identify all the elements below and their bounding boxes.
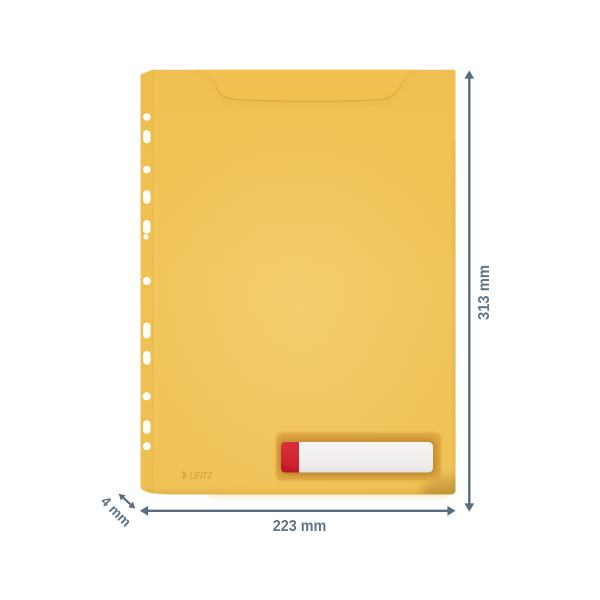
svg-text:223 mm: 223 mm [273,518,327,535]
svg-text:313 mm: 313 mm [476,265,493,320]
svg-text:LEITZ: LEITZ [189,470,213,481]
